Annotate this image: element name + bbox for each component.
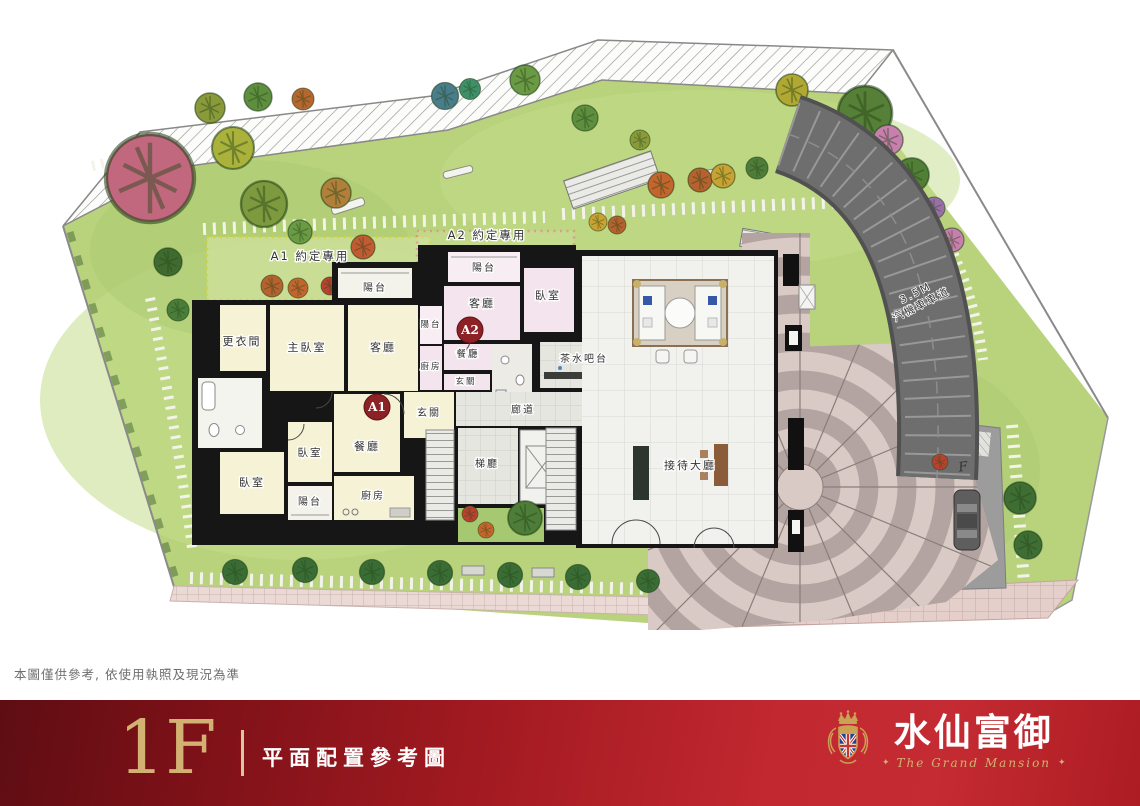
a1-balcony-bottom-label: 陽台 [298, 495, 322, 508]
ornament-left-icon: ✦ [882, 758, 890, 768]
tea-bar-label: 茶水吧台 [560, 352, 608, 365]
site-plan: A1 約定專用 A2 約定專用 陽台 更衣間 主臥室 客廳 玄關 餐廳 臥室 臥… [0, 0, 1140, 660]
a1-bedroom1-label: 臥室 [298, 446, 323, 459]
a1-master-bedroom-label: 主臥室 [288, 340, 327, 354]
brand-tagline-text: The Grand Mansion [897, 756, 1051, 770]
reception-lobby [582, 256, 774, 544]
a1-balcony-top-label: 陽台 [363, 281, 387, 294]
a2-living-room-label: 客廳 [469, 296, 495, 310]
reception-hall-label: 接待大廳 [664, 458, 716, 472]
corridor-label: 廊道 [511, 403, 535, 416]
a1-bedroom2-label: 臥室 [239, 475, 265, 489]
a2-entry-label: 玄關 [455, 376, 476, 387]
a1-closet-label: 更衣間 [223, 334, 262, 348]
page: A1 約定專用 A2 約定專用 陽台 更衣間 主臥室 客廳 玄關 餐廳 臥室 臥… [0, 0, 1140, 806]
a1-entry-label: 玄關 [417, 406, 441, 419]
brand-tagline: ✦ The Grand Mansion ✦ [882, 756, 1066, 770]
footer-divider [241, 730, 244, 776]
a2-balcony-top-label: 陽台 [472, 261, 496, 274]
elevator-lobby-label: 梯廳 [475, 457, 499, 470]
site-plan-svg: A1 約定專用 A2 約定專用 陽台 更衣間 主臥室 客廳 玄關 餐廳 臥室 臥… [0, 0, 1140, 660]
brand-name: 水仙富御 [894, 712, 1054, 755]
a2-kitchen-label: 廚房 [420, 361, 441, 372]
a1-dining-label: 餐廳 [354, 439, 380, 453]
a2-exclusive-label: A2 約定專用 [448, 228, 527, 242]
ornament-right-icon: ✦ [1058, 758, 1066, 768]
a2-balcony-side-label: 陽台 [420, 319, 441, 330]
a1-living-room-label: 客廳 [370, 340, 396, 354]
disclaimer-text: 本圖僅供參考, 依使用執照及現況為準 [14, 664, 240, 683]
unit-a2-badge: A2 [457, 317, 483, 343]
plan-subtitle: 平面配置參考圖 [262, 742, 451, 772]
a2-dining-label: 餐廳 [456, 348, 479, 360]
a1-badge-text: A1 [367, 400, 386, 414]
floor-label: 1F [118, 710, 216, 788]
a2-badge-text: A2 [460, 323, 479, 337]
a2-bedroom-label: 臥室 [535, 288, 561, 302]
footer-banner: 1F 平面配置參考圖 [0, 700, 1140, 806]
a1-kitchen-label: 廚房 [361, 489, 385, 502]
car-icon [954, 490, 980, 550]
a1-exclusive-label: A1 約定專用 [271, 249, 350, 263]
unit-a1-badge: A1 [364, 394, 390, 420]
brand-crest-icon [824, 710, 872, 772]
brand-logo: 水仙富御 ✦ The Grand Mansion ✦ [824, 710, 1066, 772]
